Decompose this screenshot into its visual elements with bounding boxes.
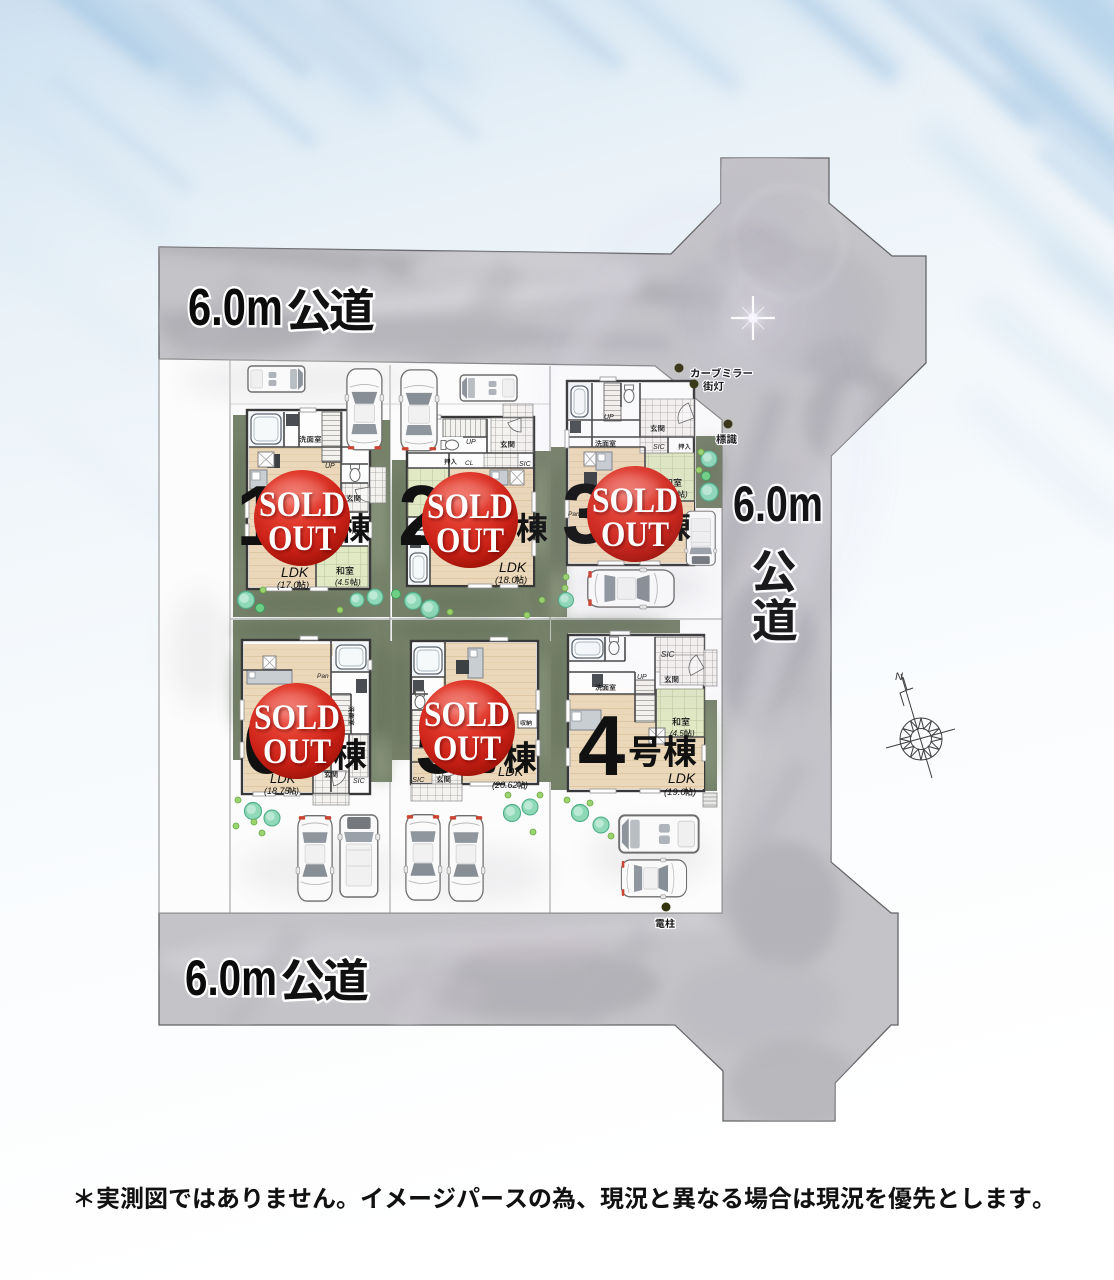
svg-text:UP: UP (325, 463, 335, 470)
svg-text:): ) (357, 578, 361, 587)
svg-text:6.0m: 6.0m (188, 279, 283, 337)
svg-text:LDK: LDK (668, 770, 696, 786)
svg-text:(19.0: (19.0 (664, 787, 686, 798)
svg-text:(20.62: (20.62 (492, 780, 518, 790)
svg-text:): ) (305, 580, 309, 591)
svg-text:6.0m: 6.0m (185, 950, 277, 1006)
svg-text:N: N (895, 671, 903, 683)
svg-text:): ) (692, 787, 696, 798)
svg-text:CL: CL (465, 460, 474, 467)
svg-text:Pan: Pan (317, 673, 329, 680)
svg-text:): ) (295, 786, 299, 796)
svg-text:4: 4 (578, 699, 625, 794)
svg-text:(17.0: (17.0 (277, 580, 299, 591)
svg-text:UP: UP (466, 439, 476, 446)
svg-text:(4.5: (4.5 (335, 578, 349, 587)
svg-text:): ) (691, 729, 695, 738)
svg-text:): ) (523, 575, 527, 586)
svg-text:SIC: SIC (353, 778, 366, 785)
svg-text:): ) (524, 780, 528, 790)
svg-text:(18.0: (18.0 (495, 575, 517, 586)
svg-text:LDK: LDK (281, 564, 309, 580)
